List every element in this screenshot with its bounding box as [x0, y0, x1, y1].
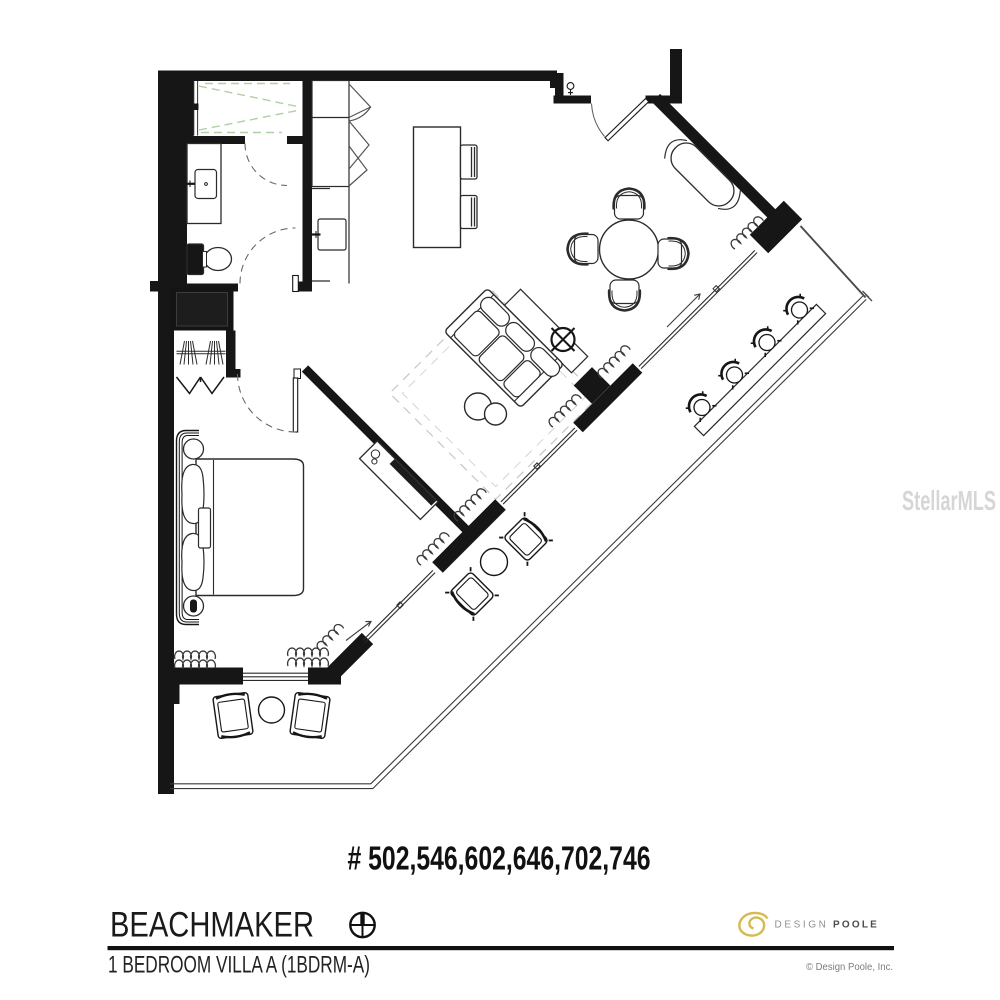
svg-text:# 502,546,602,646,702,746: # 502,546,602,646,702,746	[348, 841, 651, 878]
svg-text:© Design Poole, Inc.: © Design Poole, Inc.	[806, 961, 893, 973]
svg-text:BEACHMAKER: BEACHMAKER	[110, 906, 314, 945]
svg-text:1 BEDROOM VILLA A (1BDRM-A): 1 BEDROOM VILLA A (1BDRM-A)	[108, 952, 370, 979]
svg-text:POOLE: POOLE	[833, 920, 879, 931]
svg-text:StellarMLS: StellarMLS	[902, 485, 996, 516]
svg-text:DESIGN: DESIGN	[775, 920, 829, 931]
